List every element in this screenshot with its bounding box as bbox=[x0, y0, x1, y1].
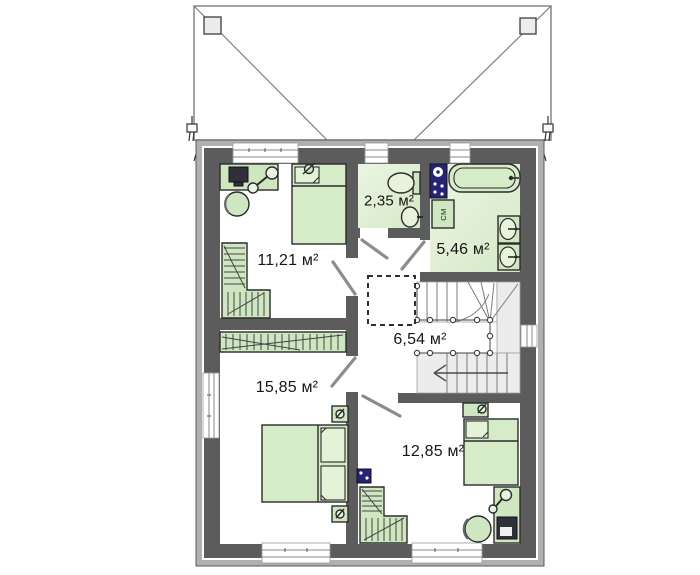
toilet-icon bbox=[388, 172, 420, 194]
area-label-room-top-left: 11,21 м² bbox=[257, 252, 318, 270]
nightstand-bottom bbox=[332, 506, 348, 522]
washing-machine-label-text: СМ bbox=[439, 208, 448, 221]
window-bottom-right bbox=[412, 543, 482, 563]
window-top-bath bbox=[450, 143, 470, 163]
window-bottom-left bbox=[262, 543, 330, 563]
bathtub-icon bbox=[449, 164, 520, 192]
area-label-wc: 2,35 м² bbox=[364, 193, 414, 210]
floor-plan-canvas: 11,21 м² 2,35 м² 5,46 м² 6,54 м² 15,85 м… bbox=[0, 0, 700, 575]
tiled-shower-strip bbox=[430, 164, 447, 198]
area-label-bedroom-right: 12,85 м² bbox=[402, 443, 464, 461]
electrical-panel-icon bbox=[357, 469, 371, 483]
floor-plan-drawing bbox=[0, 0, 700, 575]
window-right bbox=[521, 325, 537, 347]
armchair-icon bbox=[225, 192, 249, 216]
stool-icon bbox=[464, 516, 491, 542]
nightstand-top bbox=[332, 406, 348, 422]
area-label-hall: 6,54 м² bbox=[393, 331, 446, 349]
bath-sink-bottom-icon bbox=[498, 244, 520, 270]
single-bed bbox=[464, 419, 518, 485]
area-label-bathroom: 5,46 м² bbox=[436, 241, 489, 259]
chimney-left bbox=[204, 17, 221, 34]
window-left bbox=[203, 373, 219, 438]
washing-machine-label: СМ bbox=[432, 200, 454, 228]
wardrobe-wide bbox=[220, 332, 346, 352]
nightstand bbox=[463, 403, 488, 417]
double-bed bbox=[262, 425, 348, 502]
roof-outline bbox=[194, 6, 551, 140]
window-top-wc bbox=[365, 143, 388, 163]
single-bed bbox=[292, 164, 346, 244]
bath-sink-top-icon bbox=[498, 216, 520, 243]
area-label-bedroom-left: 15,85 м² bbox=[256, 379, 318, 397]
floor-opening-dashed bbox=[368, 276, 415, 325]
chimney-right bbox=[520, 18, 536, 34]
window-top-left bbox=[233, 143, 298, 163]
